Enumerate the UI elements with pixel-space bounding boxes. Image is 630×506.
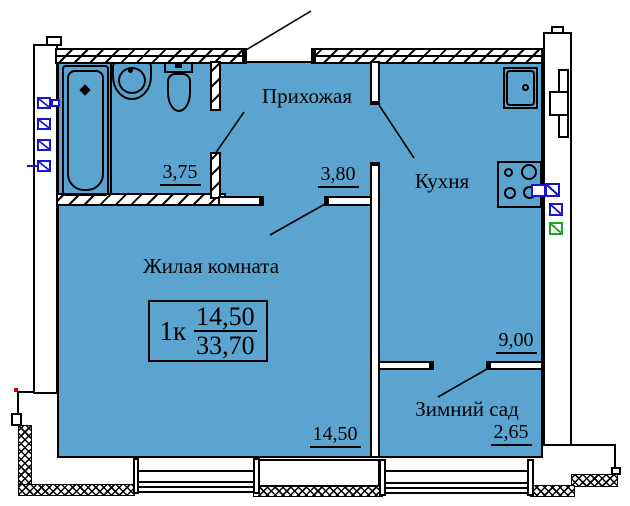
red-dot [14,388,18,392]
toilet-bowl [167,73,191,112]
kitchen-area: 9,00 [487,329,545,354]
unit-living-area: 14,50 [194,303,257,332]
riser-marker-left-4 [37,160,51,172]
living-room-label: Жилая комната [133,255,289,278]
window2-glass-mid [386,487,527,489]
floor-plan: Прихожая 3,75 3,80 Кухня 9,00 Жилая комн… [0,0,630,506]
top-wall-right-endcap [311,48,316,64]
riser-marker-right-b [549,203,563,216]
livingroom-wall-bar-right [324,196,372,206]
livingroom-wall-bar-left [218,196,264,206]
balcony-band-a [18,484,135,496]
window1-glass-top [139,481,253,483]
window2-jamb-right [527,459,534,496]
wintergarden-wall-right-cap [486,361,491,370]
wintergarden-wall-left [378,361,434,370]
window1-jamb-left [133,458,139,494]
unit-areas: 14,50 33,70 [194,303,257,360]
stove-burner-bl [504,187,516,199]
window1-jamb-right [253,458,260,494]
riser-marker-left-1-tail [51,99,60,107]
right-wall-duct-mid [549,91,569,116]
riser-marker-right-a-tail [531,184,546,197]
hallway-area: 3,80 [308,163,368,188]
stove-burner-tl [504,168,513,177]
livingroom-wall-bar-left-cap [259,196,264,206]
kitchen-label: Кухня [398,170,486,193]
livingroom-wall-bar-right-cap [324,196,329,206]
kitchen-sink-basin [506,70,535,106]
unit-total-area: 33,70 [194,332,257,359]
unit-type: 1к [159,316,186,347]
hallway-label: Прихожая [256,85,358,108]
living-room-area: 14,50 [304,423,366,448]
stove-burner-tr [521,164,537,180]
central-vertical-wall [370,162,380,458]
window1-rail [139,470,253,472]
left-wall-step-horizontal [17,391,35,393]
winter-garden-area: 2,65 [481,421,541,446]
hallway-kitchen-stub-cap [370,101,380,105]
riser-marker-right-a [545,183,560,197]
top-wall-left-endcap [242,48,247,64]
bathroom-area: 3,75 [150,161,210,186]
balcony-pier-box [258,459,380,487]
kitchen-sink-drain [522,84,529,91]
right-wall-duct-top [558,69,569,93]
riser-marker-left-1 [37,97,51,109]
window2-glass-top [386,482,527,484]
balcony-band-b [253,486,383,497]
riser-marker-left-4-tail [27,165,37,167]
riser-marker-left-3 [37,139,51,151]
balcony-band-right-upper [571,474,618,487]
left-wall-step-vertical [17,391,19,415]
unit-info-box: 1к 14,50 33,70 [148,300,268,362]
top-wall-right-segment [311,48,543,64]
riser-marker-right-c [549,222,563,235]
entrance-door-swing [246,11,311,50]
hallway-kitchen-wall-stub [370,61,380,105]
bathroom-door-post-top [210,61,221,111]
wintergarden-wall-right [486,361,543,370]
window2-jamb-left [379,459,386,496]
balcony-band-right-lower [530,485,575,497]
bathroom-door-post-bottom [210,152,221,199]
left-wall-top-notch [46,36,62,46]
central-vertical-wall-cap [370,162,380,166]
window1-glass-mid [139,486,253,488]
bath-sink-faucet [128,68,133,73]
window2-rail [386,470,527,472]
wintergarden-wall-left-cap [429,361,434,370]
window1-sill [139,491,253,493]
right-wall-duct-bottom [558,114,569,138]
right-wall-step-horizontal [570,444,616,446]
winter-garden-label: Зимний сад [407,398,527,421]
riser-marker-left-2 [37,118,51,130]
toilet-button [175,64,182,68]
right-wall-top-notch [551,26,564,34]
window2-sill [386,492,527,494]
